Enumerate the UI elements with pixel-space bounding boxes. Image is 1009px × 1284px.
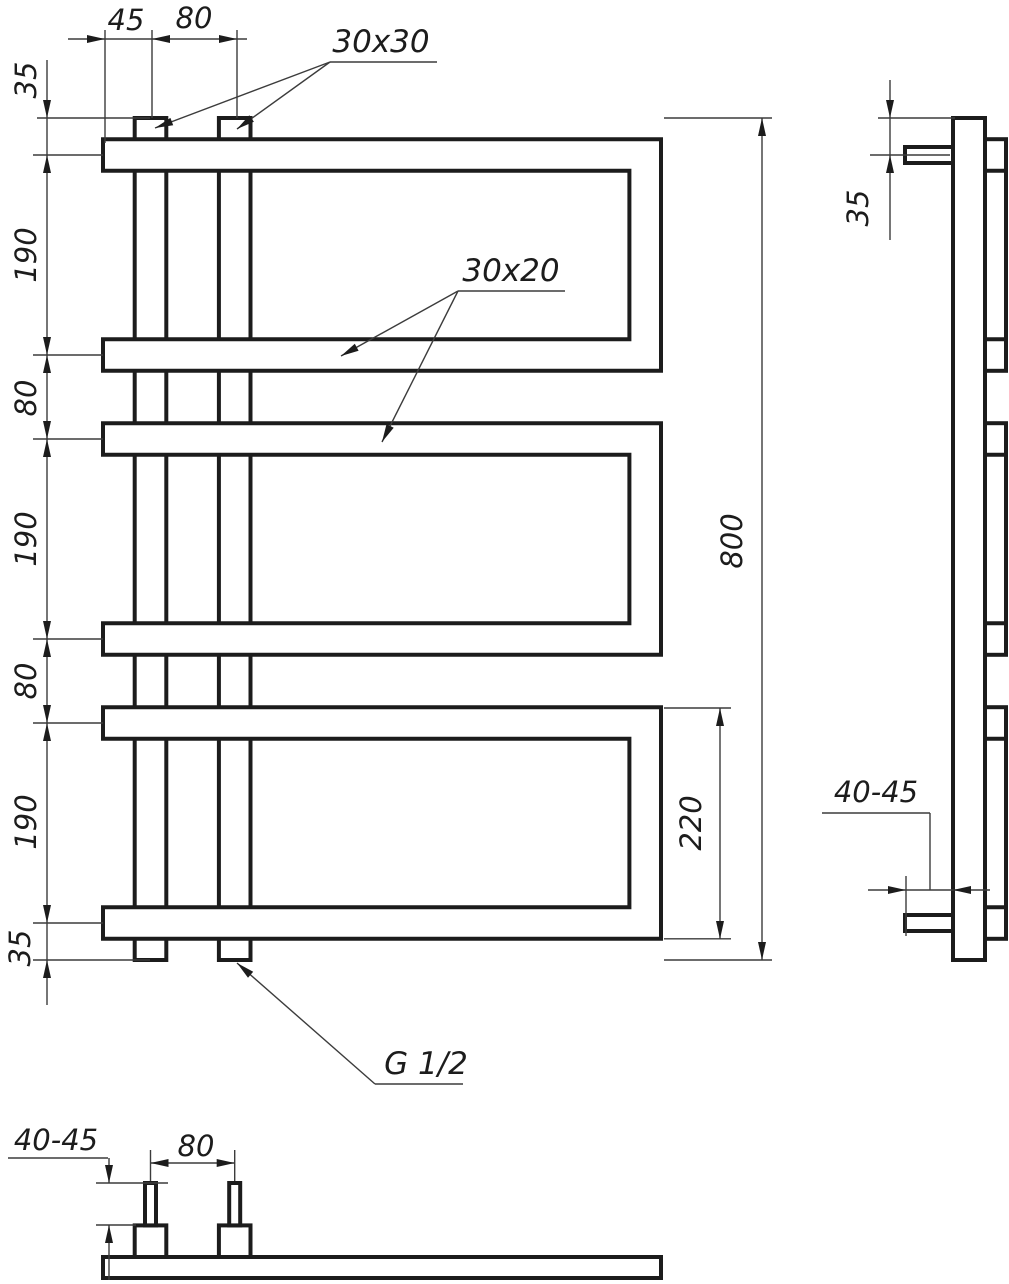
dim-35-top-label: 35	[9, 62, 43, 99]
side-connection-stub-bottom	[905, 915, 953, 931]
dim-190-b-label: 190	[9, 511, 43, 566]
dim-220: 220	[664, 708, 731, 939]
bottom-riser-block-right	[219, 1225, 251, 1257]
side-loop-bottom	[985, 707, 1006, 939]
side-loop-middle	[985, 423, 1006, 655]
side-view	[905, 118, 1006, 960]
callout-30x20-label: 30x20	[462, 253, 559, 289]
riser-left	[135, 118, 167, 960]
front-view	[103, 118, 661, 960]
callout-30x30: 30x30	[155, 24, 437, 129]
loop-bottom	[103, 707, 661, 939]
dim-190-c-label: 190	[9, 794, 43, 849]
loop-top	[103, 139, 661, 371]
side-loop-top	[985, 139, 1006, 371]
dim-80-b-label: 80	[9, 663, 43, 700]
loop-middle	[103, 423, 661, 655]
dim-220-label: 220	[674, 795, 708, 850]
dim-800-label: 800	[715, 513, 749, 568]
bottom-rung-bar	[103, 1257, 661, 1278]
bottom-pipe-stub-right	[229, 1183, 240, 1225]
dim-side-40-45-label: 40-45	[834, 775, 918, 809]
dim-80-top-label: 80	[176, 1, 213, 35]
dim-35-bottom-label: 35	[3, 930, 37, 967]
dim-bottom-40-45-label: 40-45	[14, 1123, 98, 1157]
bottom-pipe-stub-left	[145, 1183, 156, 1225]
dim-bottom-80-label: 80	[178, 1129, 215, 1163]
dim-80-a-label: 80	[9, 380, 43, 417]
dim-bottom-80: 80	[151, 1129, 235, 1181]
bottom-riser-block-left	[135, 1225, 167, 1257]
technical-drawing-canvas: 45 80 35 190 80 190 80 190	[0, 0, 1009, 1280]
callout-30x30-label: 30x30	[332, 24, 429, 60]
dim-45-label: 45	[108, 3, 145, 37]
callout-g12-label: G 1/2	[384, 1046, 468, 1082]
dim-left-chain: 35 190 80 190 80 190 35	[3, 60, 150, 1005]
riser-right	[219, 118, 251, 960]
bottom-view	[103, 1183, 661, 1278]
towel-radiator-drawing: 45 80 35 190 80 190 80 190	[0, 0, 1009, 1280]
dim-side-35-label: 35	[841, 190, 875, 227]
callout-g12: G 1/2	[237, 963, 468, 1084]
dim-190-a-label: 190	[9, 227, 43, 282]
side-riser-bar	[953, 118, 985, 960]
